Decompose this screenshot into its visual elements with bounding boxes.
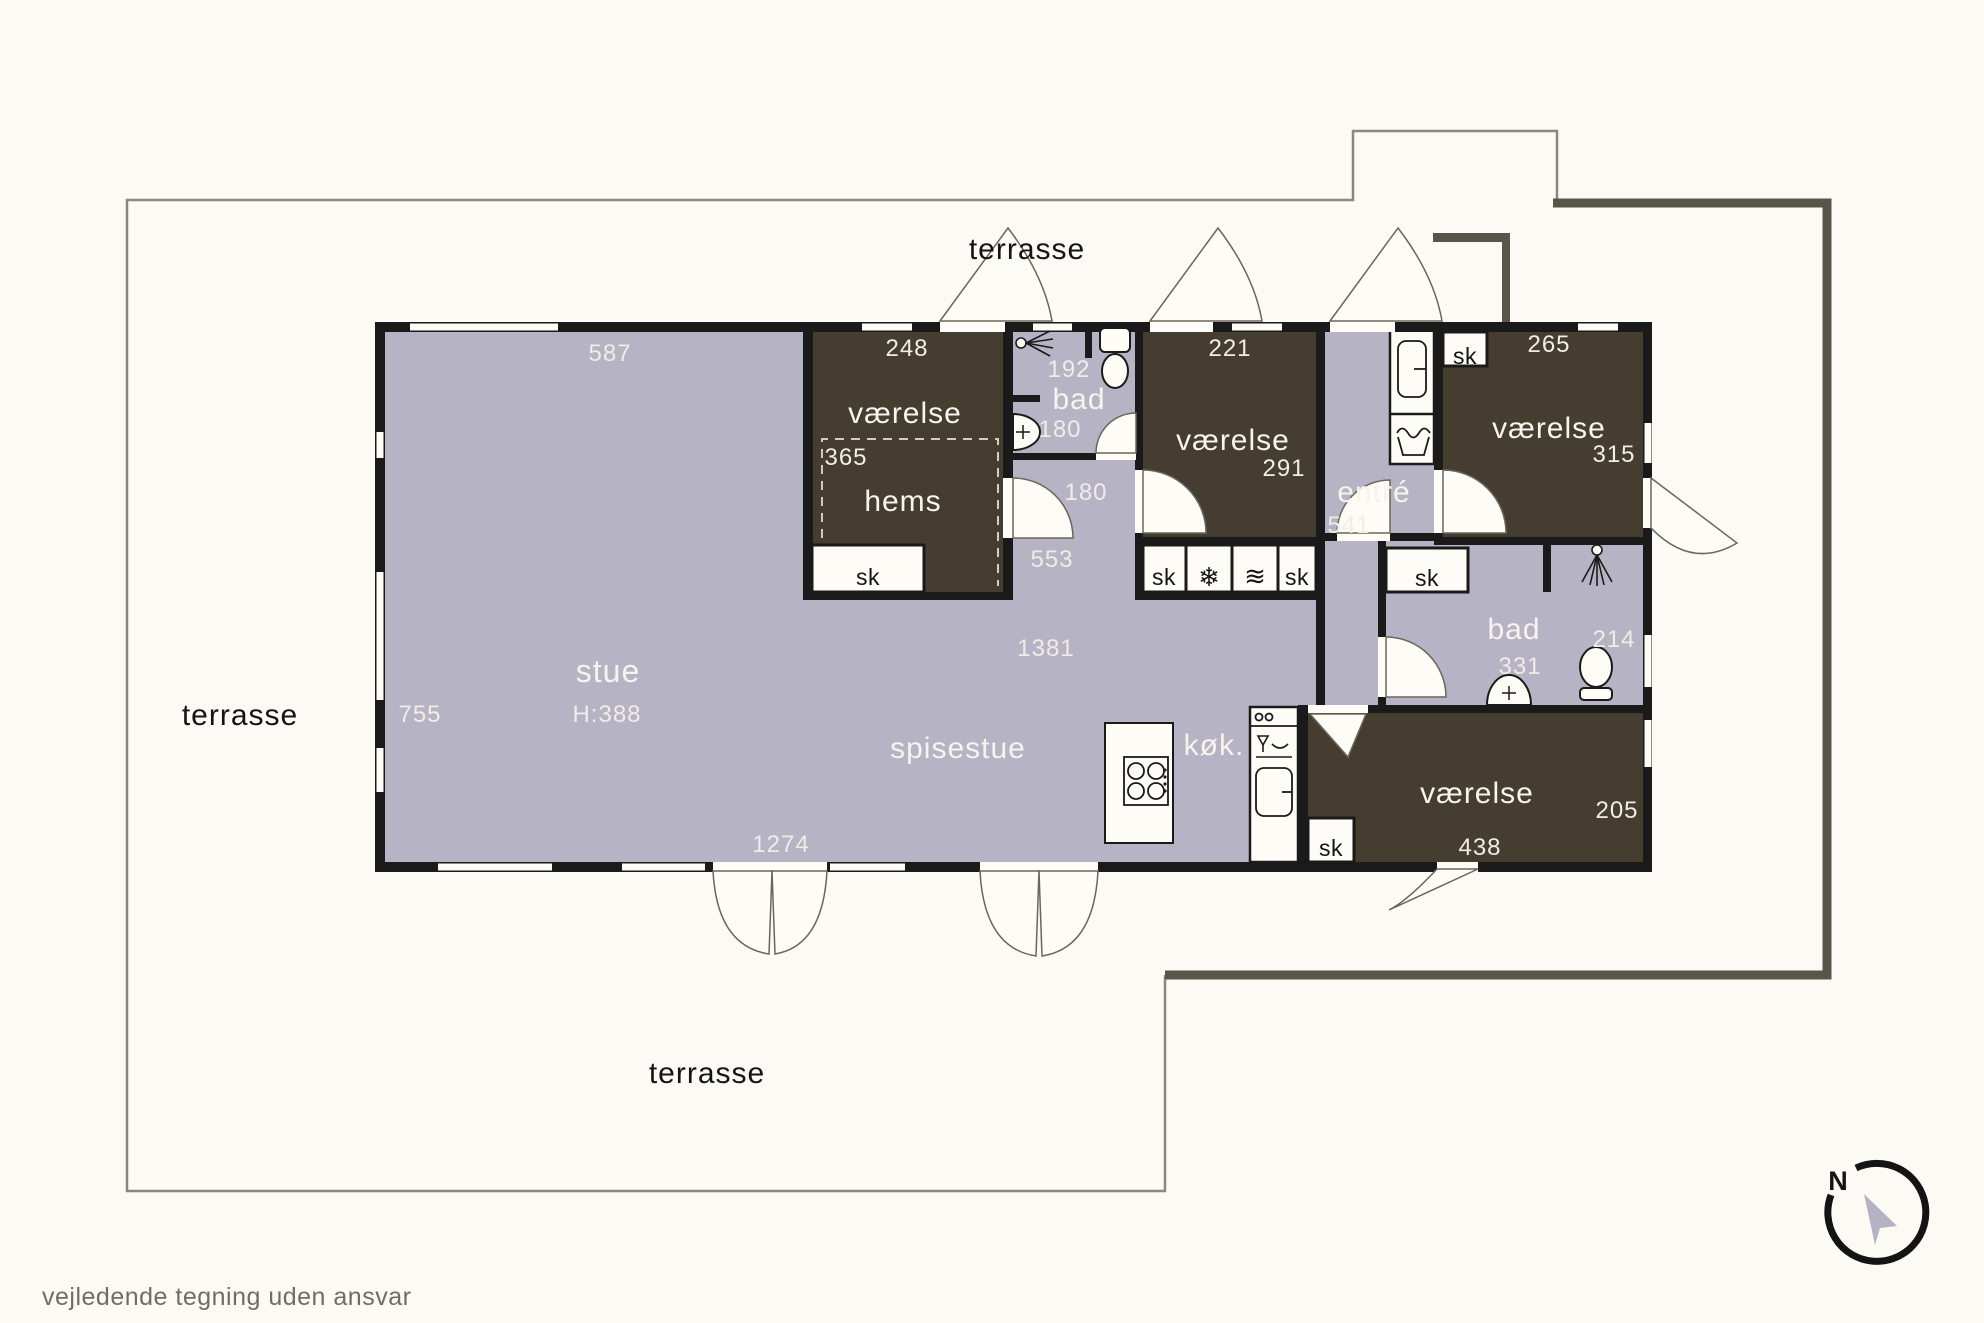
- window-vaerelse-se-right: [1645, 720, 1652, 767]
- room-label-koekken: køk.: [1184, 729, 1245, 762]
- room-label-stue: stue: [576, 653, 640, 689]
- window-spisestue-bottom: [830, 864, 905, 871]
- terrace-label-left: terrasse: [182, 699, 298, 732]
- dim-stue-bottom: 1274: [752, 831, 809, 858]
- dim-hall-length: 553: [1030, 546, 1073, 573]
- window-vaerelse-hems: [862, 324, 912, 331]
- dim-stue-top: 587: [588, 340, 631, 367]
- room-label-vaerelse-hems: værelse: [848, 397, 962, 430]
- dim-vaerelse-ne-top: 265: [1527, 331, 1570, 358]
- terrace-label-bottom: terrasse: [649, 1057, 765, 1090]
- room-label-spisestue: spisestue: [890, 732, 1026, 765]
- room-label-vaerelse-ne: værelse: [1492, 412, 1606, 445]
- dim-entre: 541: [1327, 512, 1370, 539]
- floorplan-drawing: terrasse terrasse terrasse 587 stue H:38…: [0, 0, 1984, 1323]
- window-vaerelse-mid: [1232, 324, 1282, 331]
- floorplan-page: terrasse terrasse terrasse 587 stue H:38…: [0, 0, 1984, 1323]
- window-stue-left3: [377, 748, 384, 792]
- closet-label-bad-right: sk: [1415, 565, 1439, 591]
- terrace-label-top: terrasse: [969, 233, 1085, 266]
- window-stue-bottom2: [622, 864, 705, 871]
- dim-stue-ceiling: H:388: [572, 701, 641, 728]
- dim-vaerelse-hems-top: 248: [885, 335, 928, 362]
- disclaimer-text: vejledende tegning uden ansvar: [42, 1283, 411, 1311]
- room-label-entre: entré: [1337, 476, 1410, 509]
- entre-appliance-column: [1390, 328, 1434, 464]
- dim-vaerelse-ne-right: 315: [1592, 441, 1635, 468]
- window-bad-right: [1645, 635, 1652, 687]
- kitchen-column: [1250, 707, 1298, 862]
- room-label-bad-top: bad: [1052, 383, 1105, 416]
- window-bad-top: [1033, 324, 1072, 331]
- dim-vaerelse-mid-top: 221: [1208, 335, 1251, 362]
- compass-north-label: N: [1828, 1166, 1848, 1196]
- window-vaerelse-ne-right: [1645, 423, 1652, 463]
- room-label-vaerelse-se: værelse: [1420, 777, 1534, 810]
- closet-label-vaerelse-se: sk: [1319, 835, 1343, 861]
- dim-vaerelse-mid-right: 291: [1262, 455, 1305, 482]
- dim-bad-right-width: 331: [1498, 653, 1541, 680]
- window-stue-left1: [377, 432, 384, 458]
- closet-label-vaerelse-ne: sk: [1453, 343, 1477, 369]
- room-label-hems: hems: [864, 485, 941, 518]
- dim-bad-bottom: 180: [1038, 416, 1081, 443]
- room-label-bad-right: bad: [1487, 613, 1540, 646]
- window-stue-bottom1: [438, 864, 552, 871]
- dim-stue-right: 1381: [1017, 635, 1074, 662]
- kitchen-island: [1105, 723, 1173, 843]
- freezer-icon: ❄: [1198, 562, 1220, 592]
- window-stue-left2: [377, 572, 384, 700]
- window-stue-top: [410, 324, 558, 331]
- closet-row-sk-right: sk: [1285, 564, 1309, 590]
- waves-icon: ≋: [1244, 561, 1266, 591]
- dim-vaerelse-se-bottom: 438: [1458, 834, 1501, 861]
- closet-row-sk-left: sk: [1152, 564, 1176, 590]
- closet-label-hems: sk: [856, 564, 880, 590]
- toilet-icon-right: [1580, 647, 1612, 700]
- window-vaerelse-ne-top: [1578, 324, 1618, 331]
- room-label-vaerelse-mid: værelse: [1176, 424, 1290, 457]
- dim-stue-left: 755: [398, 701, 441, 728]
- dim-bad-top: 192: [1047, 356, 1090, 383]
- dim-vaerelse-hems-left: 365: [824, 444, 867, 471]
- dim-bad-right: 214: [1592, 626, 1635, 653]
- dim-hall-width: 180: [1064, 479, 1107, 506]
- dim-vaerelse-se-right: 205: [1595, 797, 1638, 824]
